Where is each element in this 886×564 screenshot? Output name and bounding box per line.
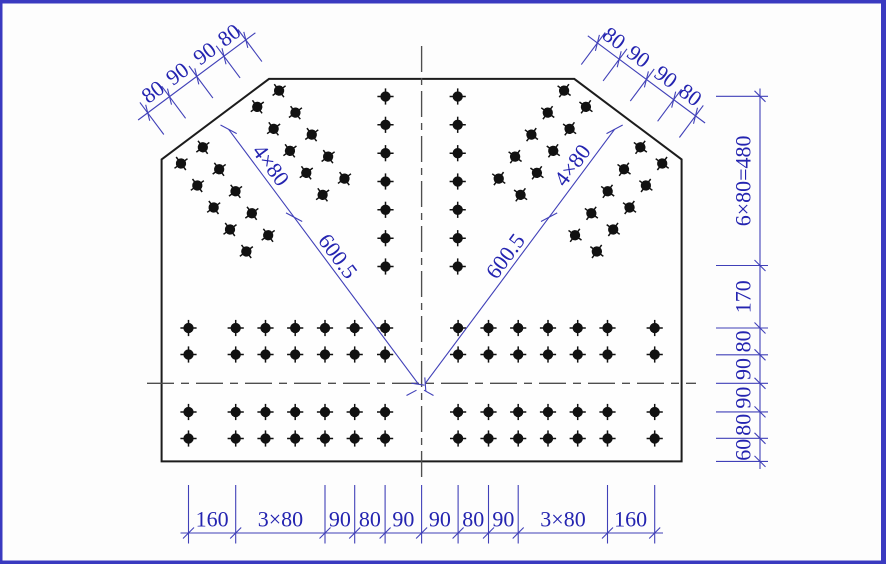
- svg-text:90: 90: [188, 37, 221, 70]
- svg-text:80: 80: [730, 330, 755, 352]
- svg-text:90: 90: [650, 60, 683, 93]
- svg-text:80: 80: [462, 506, 484, 531]
- svg-text:80: 80: [359, 506, 381, 531]
- svg-text:160: 160: [614, 506, 647, 531]
- svg-text:90: 90: [329, 506, 351, 531]
- svg-text:3×80: 3×80: [258, 506, 303, 531]
- svg-text:80: 80: [213, 18, 246, 51]
- svg-text:6×80=480: 6×80=480: [730, 135, 755, 226]
- svg-text:170: 170: [730, 280, 755, 313]
- svg-text:80: 80: [598, 21, 631, 54]
- svg-text:90: 90: [730, 358, 755, 380]
- svg-text:90: 90: [730, 387, 755, 409]
- svg-text:80: 80: [730, 414, 755, 436]
- svg-text:90: 90: [429, 506, 451, 531]
- svg-text:90: 90: [392, 506, 414, 531]
- svg-text:90: 90: [622, 40, 655, 73]
- svg-text:90: 90: [161, 57, 194, 90]
- svg-text:3×80: 3×80: [540, 506, 585, 531]
- svg-text:80: 80: [674, 78, 707, 111]
- svg-text:80: 80: [136, 75, 169, 108]
- svg-text:160: 160: [196, 506, 229, 531]
- svg-text:60: 60: [730, 439, 755, 461]
- svg-text:90: 90: [492, 506, 514, 531]
